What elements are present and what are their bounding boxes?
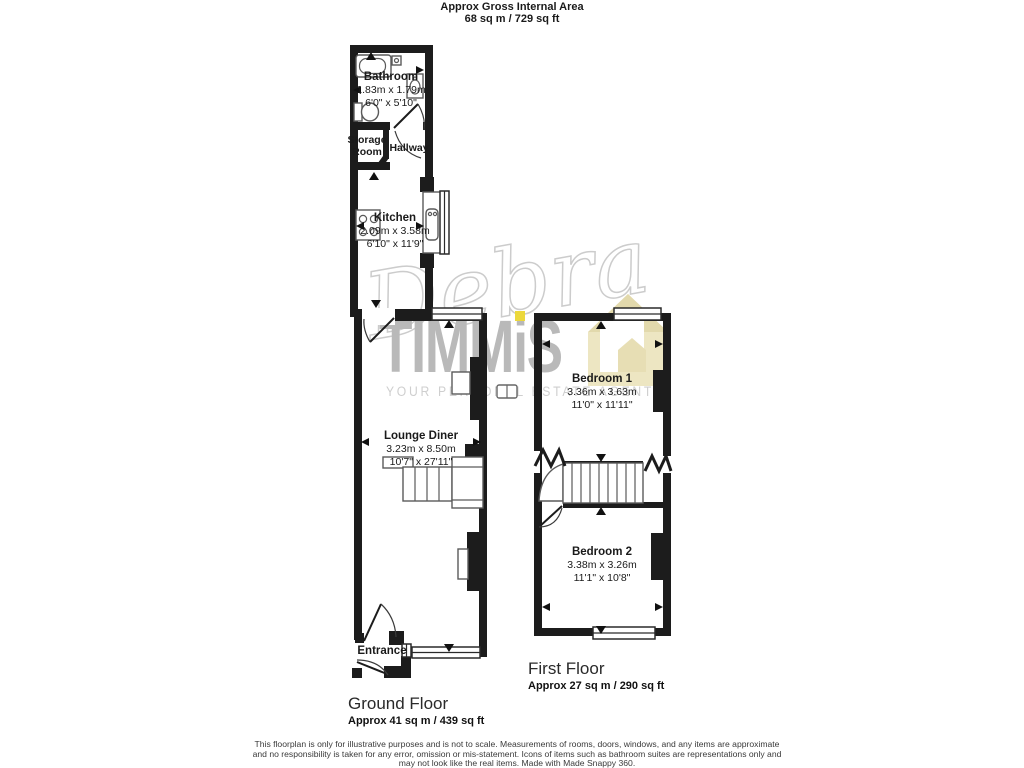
bay-stub-wall (420, 177, 434, 192)
room-dim-imperial: 11'1" x 10'8" (542, 572, 662, 585)
room-name: Kitchen (335, 212, 455, 225)
radiator-icon (452, 372, 470, 394)
room-dim-imperial: 11'0" x 11'11" (542, 399, 662, 412)
room-dim-imperial: 10'7" x 27'11" (361, 456, 481, 469)
bay-stub-wall (420, 253, 434, 268)
entrance-stub-wall (389, 631, 404, 645)
room-name: Hallway (386, 143, 432, 155)
gross-area-value: 68 sq m / 729 sq ft (0, 13, 1024, 25)
entrance-bottom-wall (384, 666, 405, 678)
room-label-kitchen: Kitchen 2.09m x 3.58m 6'10" x 11'9" (335, 212, 455, 250)
room-label-bedroom-1: Bedroom 1 3.36m x 3.63m 11'0" x 11'11" (542, 373, 662, 411)
floorplan-page: Debra TIMMiS YOUR PERSONAL ESTATE AGENT (0, 0, 1024, 768)
room-dim-metric: 3.23m x 8.50m (361, 443, 481, 456)
room-label-entrance: Entrance (352, 645, 412, 658)
disclaimer-text: This floorplan is only for illustrative … (252, 740, 782, 768)
first-floor-label: First Floor Approx 27 sq m / 290 sq ft (528, 659, 664, 692)
floor-area: Approx 41 sq m / 439 sq ft (348, 715, 484, 727)
room-dim-metric: 3.36m x 3.63m (542, 386, 662, 399)
room-name: Bathroom (331, 71, 451, 84)
room-dim-imperial: 6'10" x 11'9" (335, 238, 455, 251)
floor-name: Ground Floor (348, 694, 484, 713)
shelf-icon (392, 56, 401, 65)
floor-name: First Floor (528, 659, 664, 678)
room-name: Lounge Diner (361, 430, 481, 443)
room-dim-metric: 3.38m x 3.26m (542, 559, 662, 572)
room-dim-metric: 1.83m x 1.79m (331, 84, 451, 97)
gross-area-title: Approx Gross Internal Area (0, 1, 1024, 13)
room-dim-metric: 2.09m x 3.58m (335, 225, 455, 238)
room-name: Entrance (352, 645, 412, 658)
room-name: Bedroom 2 (542, 546, 662, 559)
window-icon (614, 308, 661, 320)
room-label-bedroom-2: Bedroom 2 3.38m x 3.26m 11'1" x 10'8" (542, 546, 662, 584)
entrance-stub-wall (355, 633, 364, 643)
window-icon (412, 647, 480, 658)
window-icon (432, 308, 482, 320)
floorplan-drawing (0, 0, 1024, 768)
fireplace-icon (458, 549, 468, 579)
floor-area: Approx 27 sq m / 290 sq ft (528, 680, 664, 692)
stairs-icon (539, 463, 643, 503)
entrance-corner-wall (352, 668, 362, 678)
room-label-lounge-diner: Lounge Diner 3.23m x 8.50m 10'7" x 27'11… (361, 430, 481, 468)
page-title: Approx Gross Internal Area 68 sq m / 729… (0, 1, 1024, 25)
room-name: Bedroom 1 (542, 373, 662, 386)
ground-floor-label: Ground Floor Approx 41 sq m / 439 sq ft (348, 694, 484, 727)
chimney-breast (470, 357, 487, 420)
room-dim-imperial: 6'0" x 5'10" (331, 97, 451, 110)
chimney-breast (467, 532, 487, 591)
room-label-bathroom: Bathroom 1.83m x 1.79m 6'0" x 5'10" (331, 71, 451, 109)
door-arc-icon (539, 506, 562, 527)
first-floor-plan (529, 308, 673, 639)
room-label-hallway: Hallway (386, 143, 432, 155)
